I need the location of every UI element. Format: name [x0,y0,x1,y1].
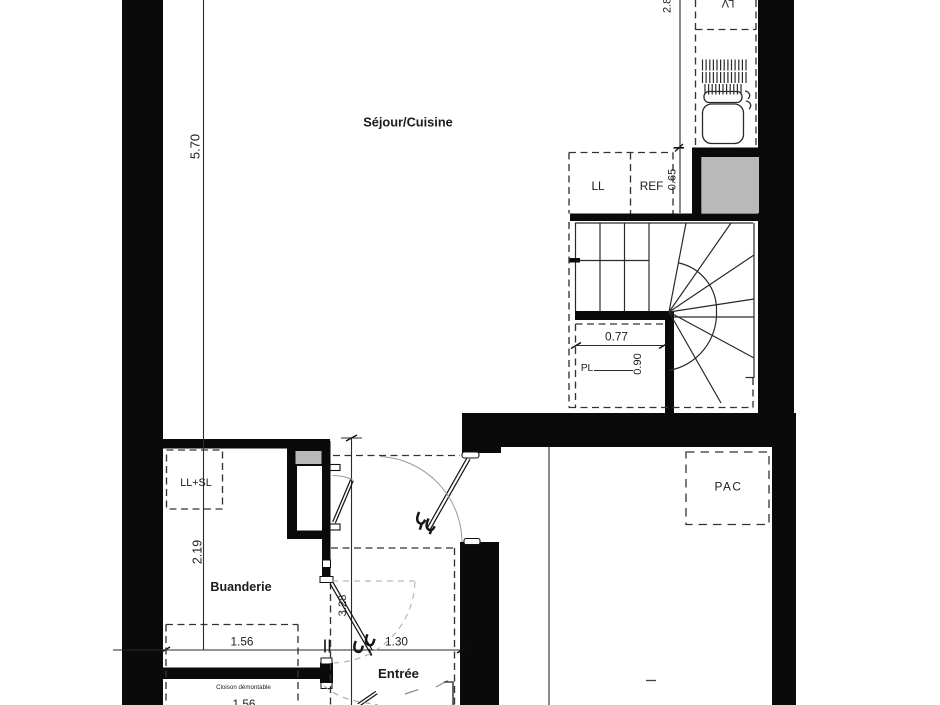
svg-text:1.56: 1.56 [231,635,254,649]
svg-text:LL: LL [591,179,605,193]
svg-text:PAC: PAC [715,480,743,494]
svg-text:1.30: 1.30 [385,635,408,649]
svg-text:5.70: 5.70 [187,134,202,159]
svg-text:Séjour/Cuisine: Séjour/Cuisine [363,115,453,130]
svg-text:LL+SL: LL+SL [180,477,212,489]
svg-text:2.80: 2.80 [662,0,674,13]
svg-text:Buanderie: Buanderie [210,580,271,594]
svg-text:1.56: 1.56 [233,697,256,705]
svg-text:0.77: 0.77 [605,330,628,344]
svg-text:LV: LV [721,0,734,9]
svg-text:PL: PL [581,363,594,374]
svg-text:0.90: 0.90 [632,353,644,374]
svg-text:Entrée: Entrée [378,666,419,681]
svg-text:Cloison démontable: Cloison démontable [216,684,271,691]
svg-text:2.19: 2.19 [190,540,204,564]
svg-text:REF: REF [640,179,664,193]
